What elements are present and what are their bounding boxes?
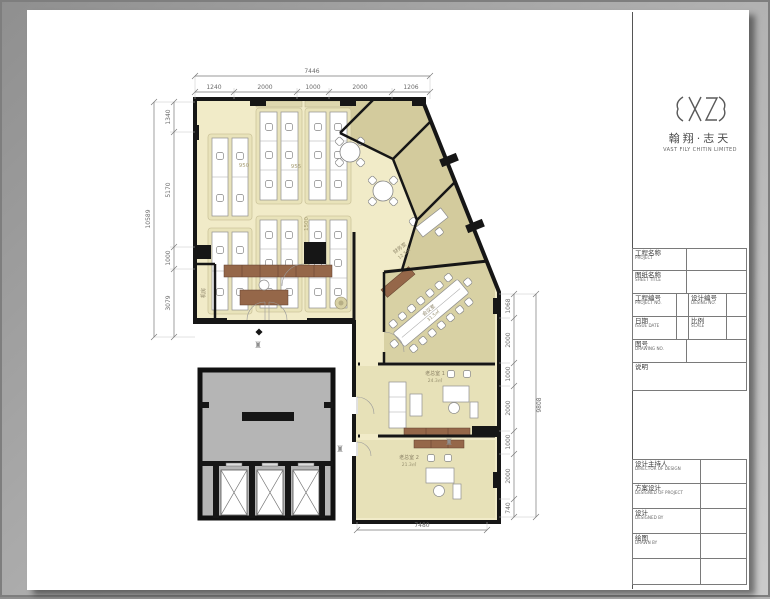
tb-label-en: DESIGNED BY: [635, 517, 693, 522]
dim-label: 2000: [505, 332, 512, 347]
dim-label: 1206: [403, 84, 418, 91]
company-logo: 翰翔·志天 VAST FILY CHITIN LIMITED: [654, 94, 746, 153]
file-cabinet: [453, 484, 461, 499]
dim-label: 9808: [536, 397, 543, 412]
dim-label: 1000: [305, 84, 320, 91]
logo-cn-text: 翰翔·志天: [654, 130, 746, 146]
tb-label-en: DRAWING NO.: [635, 348, 680, 353]
tb-row-project: 工程名称 PROJECT: [632, 248, 747, 271]
room-label: 机房: [200, 288, 207, 298]
elevator-core: [200, 370, 333, 518]
inner-dim-label: 1500: [304, 217, 310, 231]
tb-value: [633, 559, 701, 584]
tb-value: [701, 509, 746, 533]
office-chair: [449, 403, 460, 414]
dim-label: 7446: [304, 68, 319, 75]
tb-row-drawing-no: 图号 DRAWING NO.: [632, 340, 747, 363]
tb-label-en: DESING NO.: [691, 302, 721, 307]
tb-label-en: SCALE: [691, 325, 721, 330]
tb-value: [701, 559, 746, 584]
dim-label: 2000: [352, 84, 367, 91]
tb-row-issue-date: 日期 ISSUE DATE 比例 SCALE: [632, 317, 747, 340]
dim-label: 1000: [505, 366, 512, 381]
dim-label: 1240: [206, 84, 221, 91]
tb-label-en: DRAWN BY: [635, 542, 693, 547]
dim-label: 740: [505, 502, 512, 514]
inner-dim-label: 950: [239, 163, 250, 169]
tb-label-en: DIRECTOR OF DESIGN: [635, 468, 693, 473]
workstation-pod: [208, 134, 252, 220]
desk: [443, 386, 469, 402]
dim-label: 10589: [145, 209, 152, 228]
inner-dim-label: 955: [291, 164, 302, 170]
tb-value: [701, 534, 746, 558]
tb-value: [687, 340, 746, 362]
tb-value: [701, 484, 746, 508]
tb-row-sheet-title: 图纸名称 SHEET TITLE: [632, 271, 747, 294]
tb-label-en: PROJECT: [635, 257, 680, 262]
tb-row-scheme-design: 方案设计 DESIGNED OF PROJECT: [632, 484, 747, 509]
dim-label: 2000: [257, 84, 272, 91]
ornament-marker-icon: ♜: [336, 445, 344, 455]
tb-row-project-no: 工程编号 PROJECT NO. 设计编号 DESING NO.: [632, 294, 747, 317]
tb-value: [727, 294, 746, 316]
room-label: 老总室 1: [425, 370, 445, 377]
ornament-marker-icon: ♜: [445, 438, 453, 448]
tb-row-notes: 说明: [632, 363, 747, 391]
dim-label: 2000: [505, 468, 512, 483]
tb-label-en: SHEET TITLE: [635, 279, 680, 284]
tb-row-director: 设计主持人 DIRECTOR OF DESIGN: [632, 459, 747, 484]
ornament-marker-icon: ♜: [254, 341, 262, 351]
tb-label-cn: 说明: [635, 364, 744, 371]
tb-row-drawn-by: 绘图 DRAWN BY: [632, 534, 747, 559]
workstation-pod: [256, 108, 302, 204]
tb-value: [727, 317, 746, 339]
sofa: [389, 382, 406, 428]
logo-en-text: VAST FILY CHITIN LIMITED: [654, 147, 746, 153]
tb-value: [687, 249, 746, 270]
office-chair: [434, 486, 445, 497]
desk: [426, 468, 454, 483]
seal-monogram-icon: [669, 94, 731, 124]
elevator-shaft: [293, 463, 319, 515]
drawing-viewport: ♜ ♜ ♜ 7446 1240 2000 1000 2000 1206 1058…: [0, 0, 770, 597]
dim-label: 1000: [165, 250, 172, 265]
dim-label: 5170: [165, 182, 172, 197]
cabinet: [470, 402, 478, 418]
reception-desk: [240, 290, 288, 305]
dim-label: 2000: [505, 400, 512, 415]
office-chair: [259, 280, 269, 290]
tb-label-en: PROJECT NO.: [635, 302, 671, 307]
dim-label: 1068: [505, 298, 512, 313]
coffee-table: [410, 394, 422, 416]
tb-value: [677, 317, 689, 339]
room-area-label: 21.3㎡: [402, 461, 417, 468]
dim-label: 7480: [414, 522, 429, 529]
dim-label: 1000: [505, 434, 512, 449]
room-area-label: 24.3㎡: [428, 377, 443, 384]
elevator-shaft: [257, 463, 283, 515]
tb-label-en: ISSUE DATE: [635, 325, 671, 330]
tb-value: [701, 460, 746, 483]
dim-label: 3079: [165, 295, 172, 310]
room-label: 老总室 2: [399, 454, 419, 461]
tb-value: [677, 294, 689, 316]
elevator-shaft: [221, 463, 247, 515]
column: [304, 242, 326, 264]
tb-row-designed-by: 设计 DESIGNED BY: [632, 509, 747, 534]
tb-value: [687, 271, 746, 293]
tb-row-empty: [632, 559, 747, 585]
tb-label-en: DESIGNED OF PROJECT: [635, 492, 693, 497]
dim-label: 1340: [165, 109, 172, 124]
